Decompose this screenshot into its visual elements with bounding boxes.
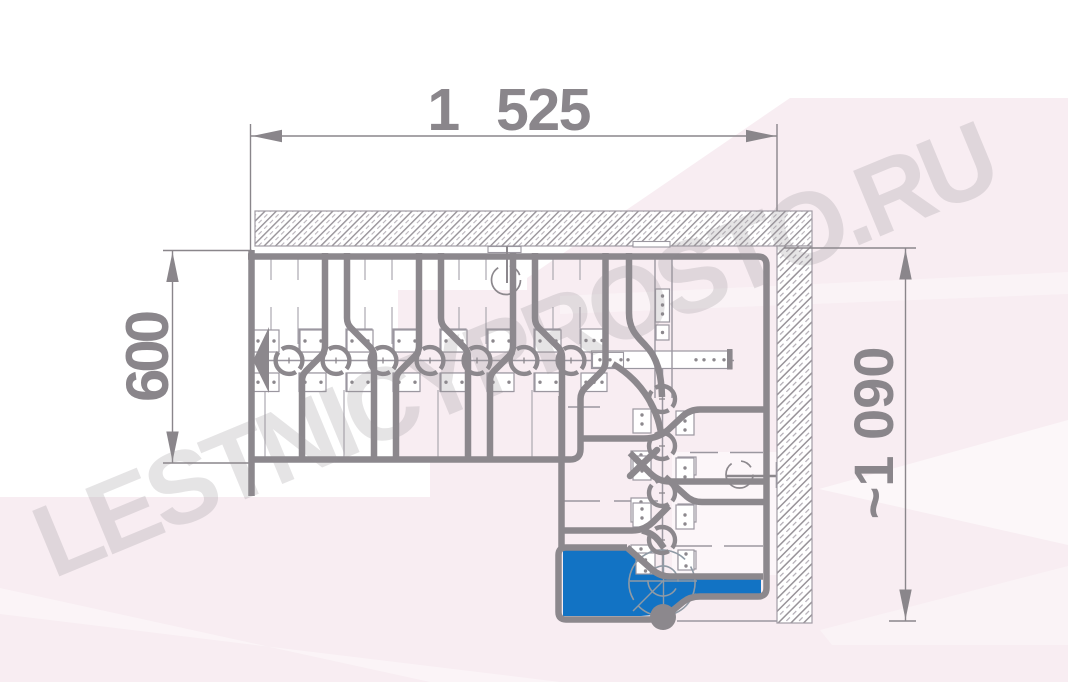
svg-text:1: 1 [427, 77, 459, 143]
svg-text:600: 600 [114, 312, 181, 402]
svg-text:~1 090: ~1 090 [842, 347, 905, 520]
svg-text:525: 525 [496, 77, 591, 143]
